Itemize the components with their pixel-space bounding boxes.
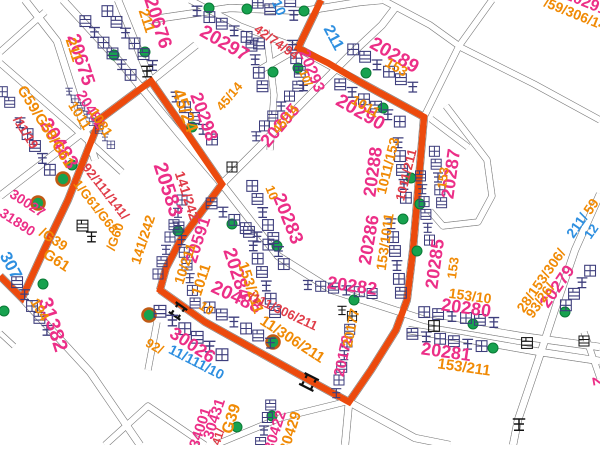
svg-text:2: 2 <box>588 375 600 387</box>
svg-text:153: 153 <box>444 256 462 280</box>
svg-text:153: 153 <box>434 166 452 190</box>
